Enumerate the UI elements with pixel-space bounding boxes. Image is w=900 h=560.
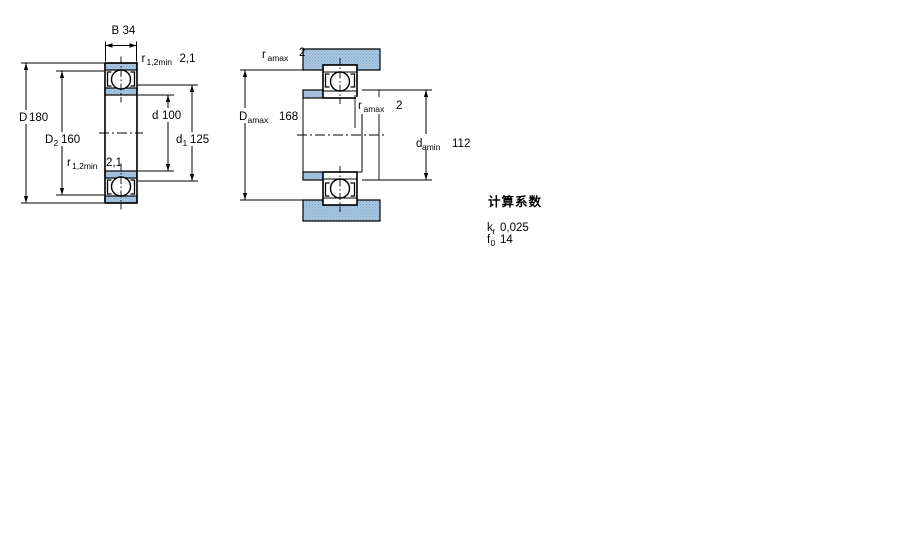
- dim-r-top-value: 2,1: [180, 53, 196, 65]
- dim-ra-top-value: 2: [299, 47, 305, 59]
- dim-D-value: 180: [29, 112, 48, 124]
- dimension-d1: d 1 125: [138, 85, 214, 181]
- dim-ra-mid-subscript: amax: [364, 104, 386, 114]
- dim-b-value: 34: [123, 25, 136, 37]
- calculation-factors: 计算系数 k r 0,025 f 0 14: [487, 194, 542, 248]
- mounted-bearing-top: [323, 58, 357, 104]
- bearing-cross-section: [99, 57, 143, 210]
- calculation-factors-heading: 计算系数: [488, 194, 542, 209]
- dim-damin-value: 112: [452, 138, 470, 150]
- dimension-r-bottom: r 1,2min 2,1: [67, 157, 122, 171]
- mounted-bearing-bottom: [323, 166, 357, 212]
- dim-r-top-symbol: r: [142, 53, 146, 65]
- dim-r-bottom-subscript: 1,2min: [72, 161, 98, 171]
- dim-r-bottom-value: 2,1: [106, 157, 122, 169]
- dim-D2-symbol: D: [45, 134, 53, 146]
- dimension-ra-top: r amax 2: [262, 47, 305, 63]
- factor-f0-value: 14: [500, 234, 513, 246]
- dim-ra-mid-symbol: r: [358, 100, 362, 112]
- dim-r-top-subscript: 1,2min: [147, 57, 173, 67]
- bearing-drawing-page: B 34 r 1,2min 2,1 D 180 D: [0, 0, 900, 560]
- dimension-Damax: D amax 168: [235, 70, 303, 200]
- dim-d1-symbol: d: [176, 134, 182, 146]
- factor-kr-value: 0,025: [500, 222, 529, 234]
- dimension-B: B 34: [106, 25, 137, 62]
- shaft-shoulder-top: [303, 90, 323, 98]
- dim-ra-mid-value: 2: [396, 100, 402, 112]
- dim-Damax-subscript: amax: [248, 115, 270, 125]
- dim-Damax-symbol: D: [239, 111, 247, 123]
- dim-b-symbol: B: [112, 25, 120, 37]
- dim-D2-subscript: 2: [54, 138, 59, 148]
- bearing-technical-drawing: B 34 r 1,2min 2,1 D 180 D: [0, 0, 900, 560]
- factor-f0-subscript: 0: [491, 238, 496, 248]
- dim-d1-value: 125: [190, 134, 209, 146]
- dim-D-symbol: D: [19, 112, 27, 124]
- right-section-view: r amax 2 D amax 168 r amax: [235, 47, 476, 221]
- dim-Damax-value: 168: [279, 111, 298, 123]
- shaft-shoulder-bottom: [303, 172, 323, 180]
- factor-kr-subscript: r: [493, 226, 496, 236]
- dimension-r-top: r 1,2min 2,1: [142, 53, 196, 67]
- dim-r-bottom-symbol: r: [67, 157, 71, 169]
- factor-row-f0: f 0 14: [487, 234, 513, 248]
- dim-d-symbol: d: [152, 110, 158, 122]
- dim-damin-subscript: amin: [422, 142, 441, 152]
- dim-ra-top-symbol: r: [262, 49, 266, 61]
- dim-d1-subscript: 1: [183, 138, 188, 148]
- dim-D2-value: 160: [61, 134, 80, 146]
- dim-d-value: 100: [162, 110, 181, 122]
- dim-ra-top-subscript: amax: [268, 53, 290, 63]
- dimension-D2: D 2 160: [43, 71, 104, 195]
- left-section-view: B 34 r 1,2min 2,1 D 180 D: [16, 25, 214, 210]
